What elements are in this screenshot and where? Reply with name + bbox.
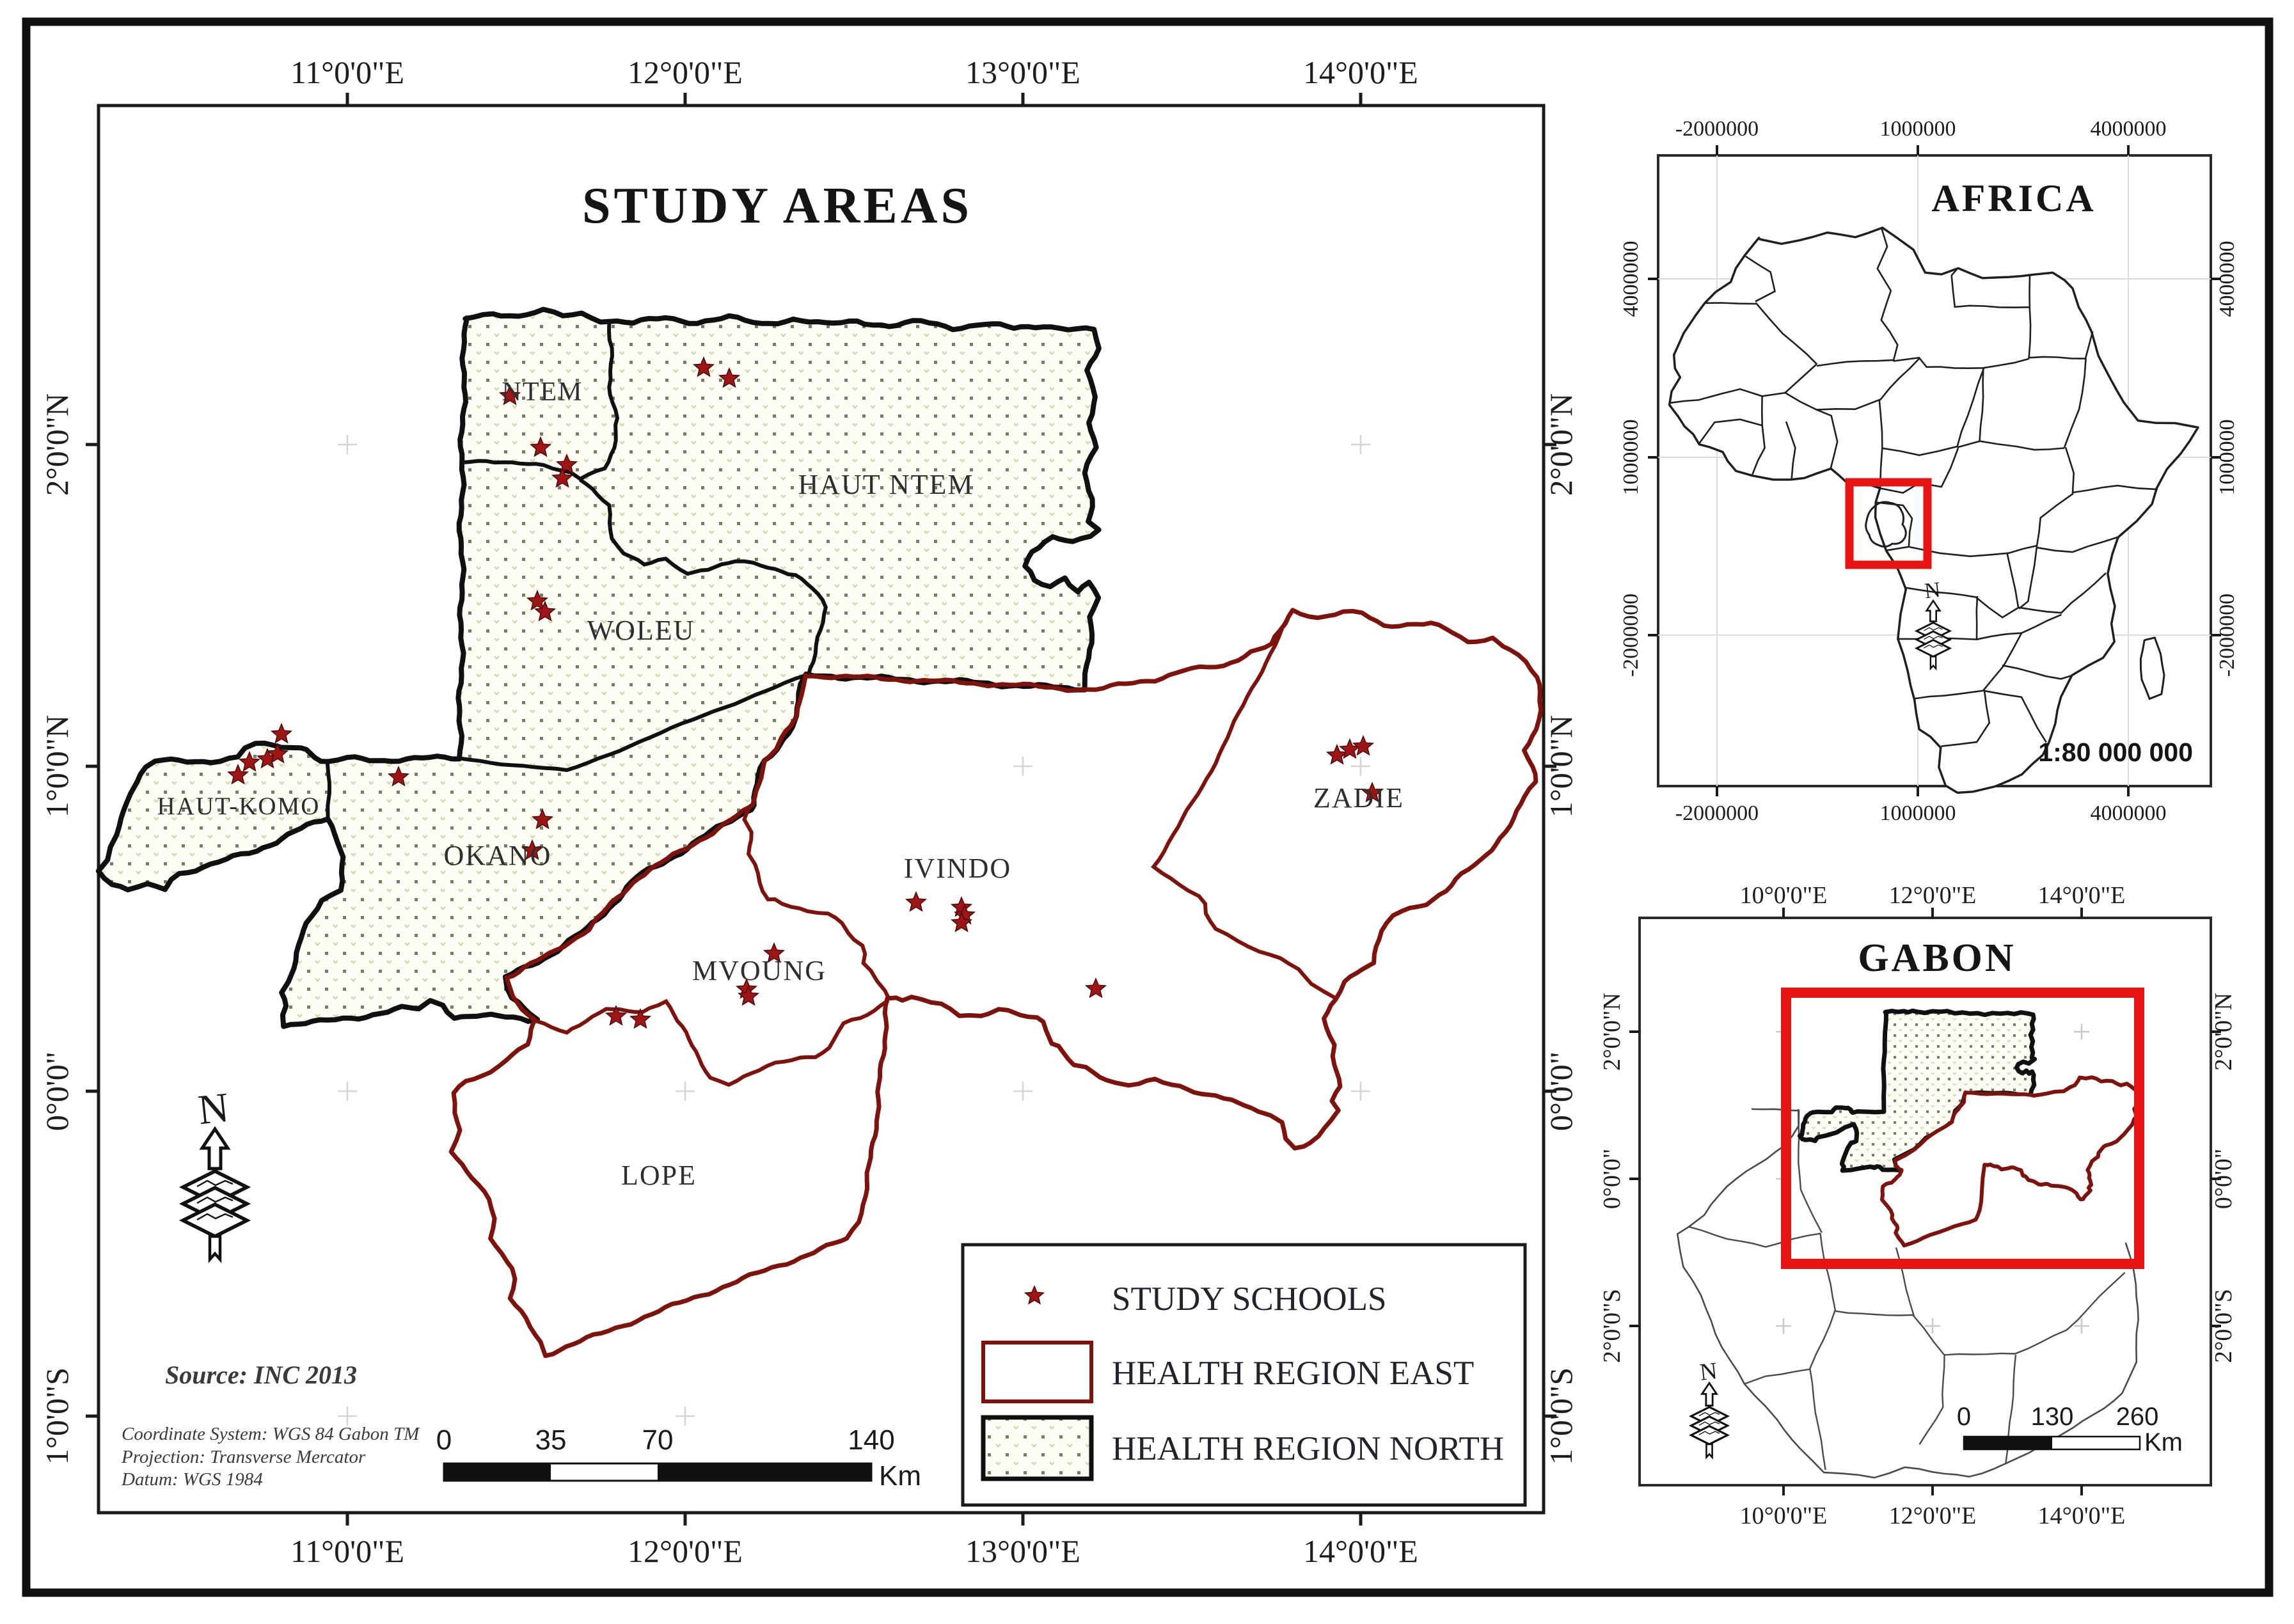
svg-text:Km: Km — [879, 1460, 921, 1492]
svg-text:14°0'0"E: 14°0'0"E — [2038, 882, 2126, 909]
svg-text:NTEM: NTEM — [502, 377, 583, 407]
svg-text:WOLEU: WOLEU — [587, 615, 695, 646]
svg-text:Datum: WGS 1984: Datum: WGS 1984 — [121, 1469, 263, 1490]
svg-text:11°0'0"E: 11°0'0"E — [290, 1533, 404, 1569]
svg-text:1000000: 1000000 — [1619, 420, 1643, 496]
svg-text:HAUT NTEM: HAUT NTEM — [798, 469, 974, 500]
svg-text:MVOUNG: MVOUNG — [692, 955, 827, 986]
svg-text:-2000000: -2000000 — [1675, 117, 1759, 141]
svg-text:1°0'0"S: 1°0'0"S — [39, 1368, 75, 1465]
svg-text:1°0'0"N: 1°0'0"N — [1543, 715, 1579, 818]
svg-text:12°0'0"E: 12°0'0"E — [628, 54, 743, 90]
svg-text:11°0'0"E: 11°0'0"E — [290, 54, 404, 90]
svg-text:0: 0 — [1957, 1403, 1971, 1431]
svg-text:0°0'0": 0°0'0" — [1543, 1052, 1579, 1131]
svg-text:12°0'0"E: 12°0'0"E — [1889, 1502, 1977, 1529]
svg-text:4000000: 4000000 — [2091, 801, 2167, 825]
svg-text:4000000: 4000000 — [2215, 241, 2239, 317]
svg-text:12°0'0"E: 12°0'0"E — [1889, 882, 1977, 909]
svg-text:35: 35 — [535, 1424, 567, 1456]
svg-text:N: N — [1924, 578, 1942, 603]
svg-text:HAUT-KOMO: HAUT-KOMO — [157, 792, 320, 820]
svg-text:N: N — [1698, 1357, 1718, 1386]
svg-text:1°0'0"N: 1°0'0"N — [39, 715, 75, 818]
svg-text:STUDY SCHOOLS: STUDY SCHOOLS — [1112, 1281, 1386, 1318]
svg-text:12°0'0"E: 12°0'0"E — [628, 1533, 743, 1569]
svg-text:14°0'0"E: 14°0'0"E — [2038, 1502, 2126, 1529]
svg-text:14°0'0"E: 14°0'0"E — [1303, 54, 1418, 90]
svg-text:-2000000: -2000000 — [2215, 594, 2239, 677]
svg-text:14°0'0"E: 14°0'0"E — [1303, 1533, 1418, 1569]
svg-text:2°0'0"S: 2°0'0"S — [1599, 1289, 1626, 1363]
svg-text:2°0'0"N: 2°0'0"N — [39, 393, 75, 496]
svg-text:10°0'0"E: 10°0'0"E — [1740, 1502, 1828, 1529]
svg-text:130: 130 — [2031, 1403, 2074, 1431]
svg-text:Km: Km — [2144, 1428, 2183, 1456]
svg-text:4000000: 4000000 — [2091, 117, 2167, 141]
svg-text:1000000: 1000000 — [1880, 117, 1956, 141]
svg-text:2°0'0"N: 2°0'0"N — [1543, 393, 1579, 496]
svg-text:10°0'0"E: 10°0'0"E — [1740, 882, 1828, 909]
svg-text:4000000: 4000000 — [1619, 241, 1643, 317]
svg-text:LOPE: LOPE — [621, 1160, 697, 1191]
svg-text:-2000000: -2000000 — [1619, 594, 1643, 677]
svg-text:0: 0 — [436, 1424, 452, 1456]
svg-text:1000000: 1000000 — [1880, 801, 1956, 825]
svg-text:HEALTH REGION NORTH: HEALTH REGION NORTH — [1112, 1430, 1504, 1467]
svg-text:1000000: 1000000 — [2215, 420, 2239, 496]
svg-text:ZADIE: ZADIE — [1313, 782, 1404, 814]
svg-text:GABON: GABON — [1858, 936, 2016, 980]
svg-text:HEALTH REGION EAST: HEALTH REGION EAST — [1112, 1355, 1474, 1392]
svg-text:260: 260 — [2116, 1403, 2159, 1431]
svg-text:Source: INC 2013: Source: INC 2013 — [165, 1360, 357, 1389]
svg-text:-2000000: -2000000 — [1675, 801, 1759, 825]
svg-text:0°0'0": 0°0'0" — [1599, 1149, 1626, 1210]
svg-text:0°0'0": 0°0'0" — [39, 1052, 75, 1131]
svg-text:1:80 000 000: 1:80 000 000 — [2038, 737, 2193, 767]
svg-text:STUDY AREAS: STUDY AREAS — [582, 178, 972, 234]
svg-text:Projection: Transverse Mercato: Projection: Transverse Mercator — [121, 1447, 366, 1467]
svg-text:OKANO: OKANO — [444, 840, 552, 871]
svg-text:13°0'0"E: 13°0'0"E — [965, 1533, 1080, 1569]
svg-text:1°0'0"S: 1°0'0"S — [1543, 1368, 1579, 1465]
svg-text:2°0'0"N: 2°0'0"N — [2210, 993, 2237, 1071]
svg-text:AFRICA: AFRICA — [1931, 177, 2096, 219]
svg-text:140: 140 — [848, 1424, 894, 1456]
svg-text:13°0'0"E: 13°0'0"E — [965, 54, 1080, 90]
svg-text:2°0'0"N: 2°0'0"N — [1599, 993, 1626, 1071]
svg-text:N: N — [196, 1084, 231, 1134]
svg-text:Coordinate System: WGS 84 Gabo: Coordinate System: WGS 84 Gabon TM — [122, 1424, 420, 1444]
svg-text:70: 70 — [642, 1424, 674, 1456]
svg-text:IVINDO: IVINDO — [904, 853, 1011, 884]
svg-text:0°0'0": 0°0'0" — [2210, 1149, 2237, 1210]
svg-text:2°0'0"S: 2°0'0"S — [2210, 1289, 2237, 1363]
